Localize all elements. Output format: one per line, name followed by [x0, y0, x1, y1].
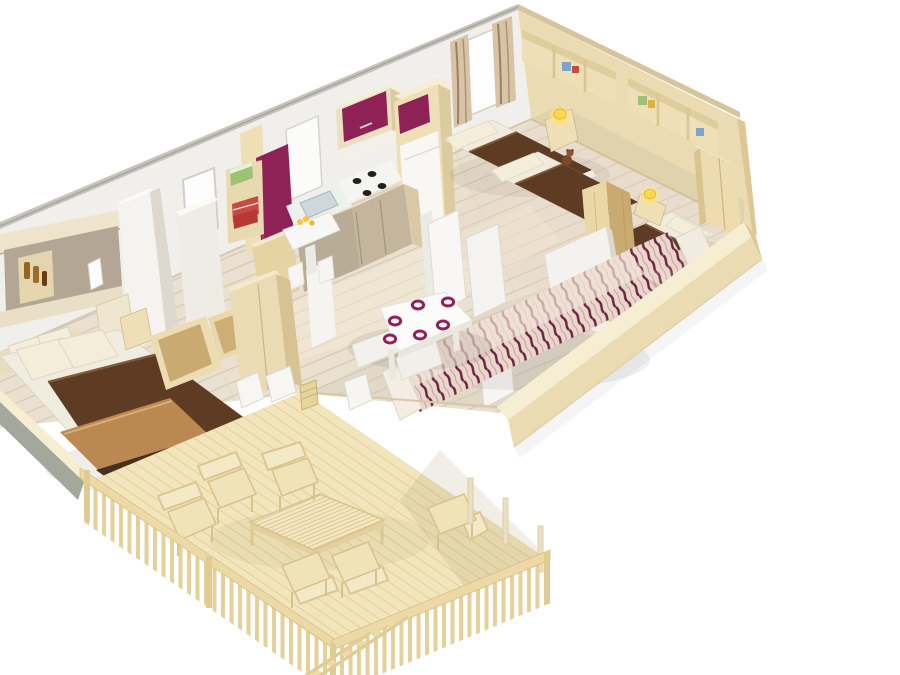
floorplan-render [0, 0, 900, 675]
floorplan-stage [0, 0, 900, 675]
kitchen-mirror [286, 116, 322, 200]
window [468, 29, 497, 115]
railing-post [544, 552, 550, 604]
wall-sconce [88, 258, 103, 290]
railing-post [84, 470, 90, 522]
toy [696, 128, 704, 136]
curtain-right [492, 16, 516, 108]
plate [381, 333, 399, 346]
lamp-shade [554, 109, 566, 119]
corner-post [300, 380, 318, 410]
flower [309, 220, 314, 225]
toy [572, 66, 579, 73]
flower [297, 219, 303, 225]
plate [386, 315, 404, 328]
toy [562, 62, 571, 71]
flower [303, 216, 309, 222]
plate [439, 296, 457, 309]
plate [411, 329, 429, 342]
railing-post [206, 556, 212, 608]
plate [434, 319, 452, 332]
plate [409, 299, 427, 312]
toy [648, 100, 655, 108]
table-base [305, 244, 317, 276]
toy [638, 96, 647, 105]
lamp-shade [644, 189, 655, 198]
